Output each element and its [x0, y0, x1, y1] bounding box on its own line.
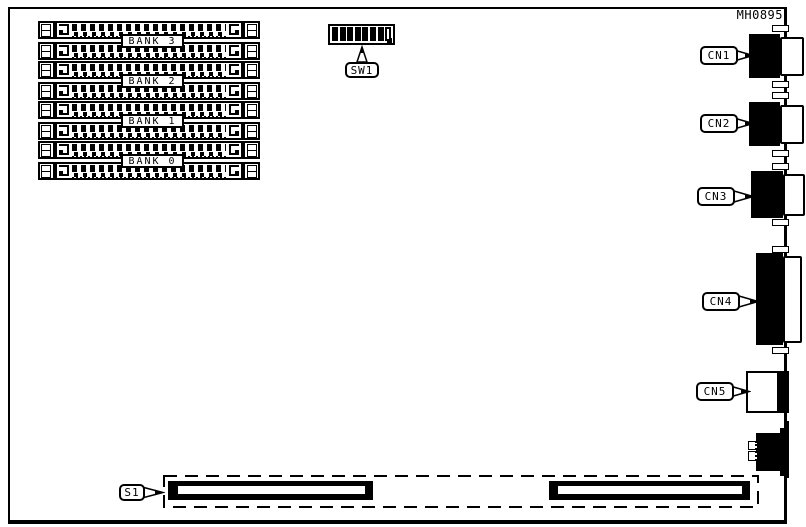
- mounting-tab: [772, 92, 789, 99]
- mounting-tab: [772, 163, 789, 170]
- socket-clip: [229, 24, 239, 35]
- socket-end-bar: [53, 103, 57, 117]
- bank1-label: BANK 1: [121, 114, 184, 128]
- din-connector-body: [756, 433, 781, 471]
- socket-end-bar: [53, 23, 57, 37]
- mounting-tab: [772, 219, 789, 226]
- dip-position-1: [332, 27, 338, 41]
- socket-end-bar: [53, 63, 57, 77]
- cn4-label: CN4: [702, 292, 740, 311]
- socket-end-bar: [53, 124, 57, 138]
- dip-position-3: [347, 27, 353, 41]
- dip-position-5: [362, 27, 368, 41]
- bank2-label: BANK 2: [121, 74, 184, 88]
- socket-end-cells: [247, 64, 257, 76]
- socket-clip: [229, 85, 239, 96]
- socket-end-cells: [41, 64, 51, 76]
- socket-clip: [59, 165, 69, 176]
- cn2-label: CN2: [700, 114, 738, 133]
- socket-end-bar: [241, 143, 245, 157]
- edge-slot-opening: [558, 486, 742, 494]
- dip-position-2: [340, 27, 346, 41]
- sw1-pointer: [355, 45, 369, 63]
- motherboard-diagram: MH0895 BANK 3 BANK 2 BANK 1 BANK 0 SW1 C…: [0, 0, 806, 527]
- socket-end-bar: [241, 84, 245, 98]
- socket-end-cells: [41, 104, 51, 116]
- socket-end-bar: [53, 164, 57, 178]
- din-connector-step: [784, 421, 789, 478]
- socket-end-cells: [41, 45, 51, 57]
- socket-clip: [229, 144, 239, 155]
- socket-end-bar: [53, 84, 57, 98]
- cn5-label: CN5: [696, 382, 734, 401]
- sw1-label: SW1: [345, 62, 379, 78]
- socket-end-bar: [53, 143, 57, 157]
- dip-position-7: [378, 27, 384, 41]
- socket-end-cells: [247, 104, 257, 116]
- cn2-dsub-port: [780, 105, 804, 144]
- cn5-connector-back: [779, 371, 789, 413]
- socket-clip: [59, 144, 69, 155]
- cn4-pointer: [738, 294, 760, 309]
- bank0-label: BANK 0: [121, 154, 184, 168]
- socket-end-cells: [247, 144, 257, 156]
- socket-end-bar: [241, 63, 245, 77]
- socket-end-cells: [41, 125, 51, 137]
- socket-clip: [229, 104, 239, 115]
- doc-code: MH0895: [735, 8, 783, 22]
- socket-end-cells: [41, 24, 51, 36]
- socket-end-bar: [241, 124, 245, 138]
- jack-port: [748, 451, 757, 461]
- cn3-pointer: [733, 189, 755, 204]
- socket-end-cells: [247, 45, 257, 57]
- socket-end-bar: [241, 103, 245, 117]
- socket-clip: [229, 64, 239, 75]
- cn1-label: CN1: [700, 46, 738, 65]
- socket-clip: [229, 125, 239, 136]
- socket-end-cells: [247, 125, 257, 137]
- cn3-label: CN3: [697, 187, 735, 206]
- socket-end-cells: [41, 165, 51, 177]
- socket-end-bar: [241, 23, 245, 37]
- dip-switch-sw1: [328, 24, 395, 45]
- mounting-tab: [772, 81, 789, 88]
- socket-end-cells: [247, 24, 257, 36]
- socket-clip: [59, 64, 69, 75]
- cn3-connector-body: [751, 171, 783, 218]
- cn3-dsub-port: [783, 174, 805, 216]
- dip-position-6: [370, 27, 376, 41]
- jack-port: [748, 441, 757, 450]
- socket-clip: [229, 45, 239, 56]
- mounting-tab: [772, 347, 789, 354]
- socket-clip: [59, 125, 69, 136]
- dip-position-8: [385, 27, 391, 41]
- mounting-tab: [772, 150, 789, 157]
- socket-end-cells: [247, 165, 257, 177]
- cn4-dsub-port: [783, 256, 802, 343]
- socket-clip: [59, 85, 69, 96]
- socket-end-bar: [53, 44, 57, 58]
- socket-end-cells: [247, 85, 257, 97]
- socket-clip: [59, 45, 69, 56]
- cn1-dsub-port: [780, 37, 804, 76]
- mounting-tab: [772, 25, 789, 32]
- mounting-tab: [772, 246, 789, 253]
- socket-end-cells: [41, 85, 51, 97]
- cn4-connector-body: [756, 253, 783, 345]
- socket-clip: [59, 104, 69, 115]
- edge-slot-opening: [178, 486, 365, 494]
- socket-clip: [229, 165, 239, 176]
- socket-clip: [59, 24, 69, 35]
- socket-end-bar: [241, 44, 245, 58]
- dip-position-4: [355, 27, 361, 41]
- socket-end-bar: [241, 164, 245, 178]
- socket-end-cells: [41, 144, 51, 156]
- s1-label: S1: [119, 484, 145, 501]
- bank3-label: BANK 3: [121, 34, 184, 48]
